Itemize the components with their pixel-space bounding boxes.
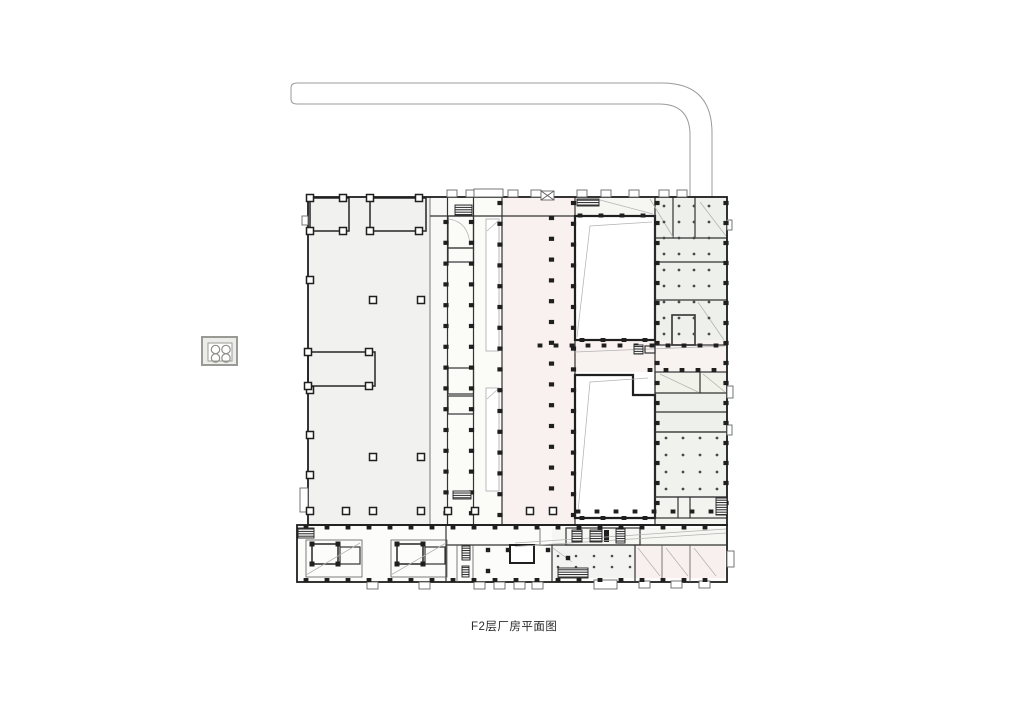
- production-hall-2: [575, 375, 655, 518]
- vehicle-ramp: [291, 83, 712, 196]
- floor-plan-drawing: [0, 0, 1024, 723]
- main-hall-fill: [308, 197, 430, 525]
- floor-plan-sheet: F2层厂房平面图: [0, 0, 1024, 723]
- plan-caption: F2层厂房平面图: [471, 618, 611, 634]
- elevator-x-icon: [541, 191, 554, 200]
- central-corridor-fill: [502, 197, 575, 525]
- production-hall-1: [575, 216, 655, 340]
- equipment-pad-icon: [202, 337, 237, 365]
